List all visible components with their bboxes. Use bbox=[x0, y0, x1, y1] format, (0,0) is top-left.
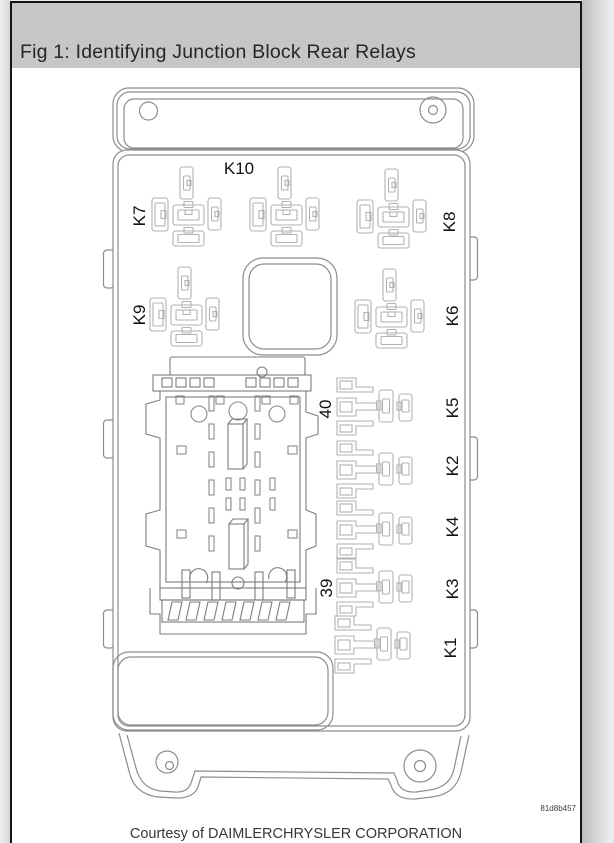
label-k9: K9 bbox=[130, 305, 149, 326]
label-k10: K10 bbox=[224, 159, 254, 178]
label-k7: K7 bbox=[130, 206, 149, 227]
graphic-id: 81d8b457 bbox=[540, 804, 576, 813]
label-k4: K4 bbox=[443, 517, 462, 538]
screw-hole-bottom-right bbox=[404, 750, 436, 782]
label-k5: K5 bbox=[443, 398, 462, 419]
label-k3: K3 bbox=[443, 579, 462, 600]
figure-title: Fig 1: Identifying Junction Block Rear R… bbox=[20, 41, 416, 64]
label-k8: K8 bbox=[440, 212, 459, 233]
label-39: 39 bbox=[317, 579, 336, 598]
screenshot-stage: Fig 1: Identifying Junction Block Rear R… bbox=[0, 0, 614, 843]
label-k2: K2 bbox=[443, 456, 462, 477]
label-k1: K1 bbox=[441, 638, 460, 659]
page-drop-shadow bbox=[582, 0, 614, 843]
figure-page: Fig 1: Identifying Junction Block Rear R… bbox=[10, 1, 582, 843]
label-k6: K6 bbox=[443, 306, 462, 327]
junction-block-diagram: K10 K7 K8 K9 K6 K5 40 K2 K4 K3 39 K1 bbox=[12, 68, 578, 841]
label-40: 40 bbox=[316, 400, 335, 419]
courtesy-line: Courtesy of DAIMLERCHRYSLER CORPORATION bbox=[12, 826, 580, 842]
bottom-flange bbox=[119, 733, 469, 799]
top-flange bbox=[113, 88, 474, 152]
page-left-margin bbox=[0, 0, 10, 843]
figure-title-bar: Fig 1: Identifying Junction Block Rear R… bbox=[12, 3, 580, 68]
